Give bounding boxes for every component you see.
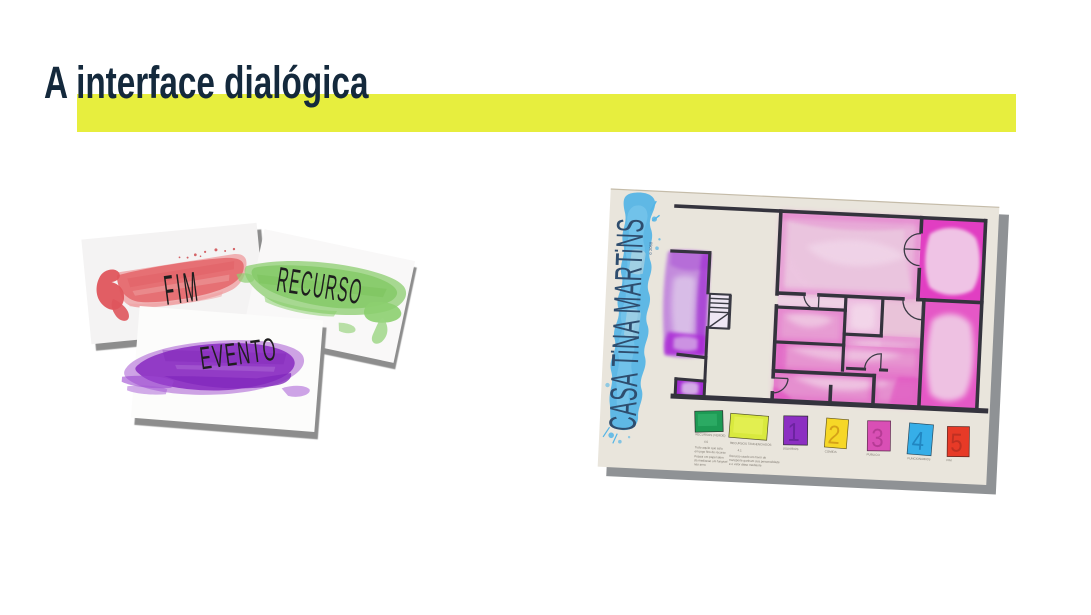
svg-text:5: 5 xyxy=(950,429,963,458)
svg-text:3: 3 xyxy=(872,424,885,453)
svg-text:1: 1 xyxy=(788,419,801,448)
svg-text:CASA TiNA MARTiNS: CASA TiNA MARTiNS xyxy=(602,217,652,432)
